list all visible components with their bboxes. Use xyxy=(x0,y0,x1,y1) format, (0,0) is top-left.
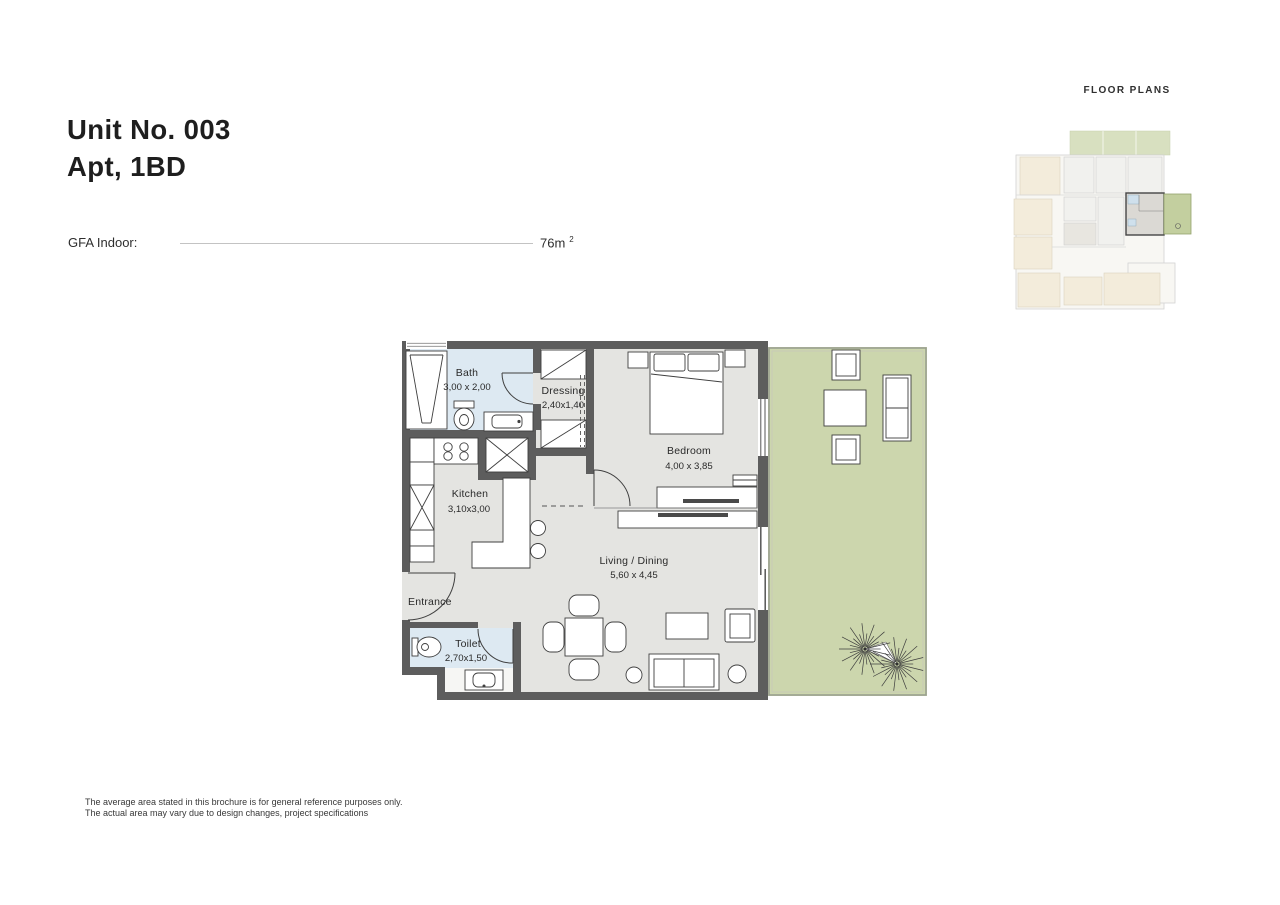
gfa-label: GFA Indoor: xyxy=(68,235,137,250)
minimap-highlighted-unit xyxy=(1126,193,1164,235)
outdoor-sofa-icon xyxy=(883,375,911,441)
side-table-icon xyxy=(626,667,642,683)
bar-stool-icon xyxy=(531,544,546,559)
wardrobe-icon xyxy=(541,350,586,379)
section-label: FLOOR PLANS xyxy=(1060,85,1194,96)
bar-stool-icon xyxy=(531,521,546,536)
nightstand-icon xyxy=(725,350,745,367)
room-label-living-dining: Living / Dining xyxy=(600,555,669,567)
dining-chair-icon xyxy=(569,659,599,680)
terrace xyxy=(768,347,927,696)
room-dim-toilet: 2,70x1,50 xyxy=(445,653,487,664)
disclaimer-line2: The actual area may vary due to design c… xyxy=(85,808,403,819)
room-dim-bedroom: 4,00 x 3,85 xyxy=(665,461,712,472)
room-label-kitchen: Kitchen xyxy=(452,488,488,500)
unit-type: Apt, 1BD xyxy=(67,148,231,185)
fridge-icon xyxy=(410,485,434,530)
armchair-icon xyxy=(725,609,755,642)
unit-number: Unit No. 003 xyxy=(67,111,231,148)
stove-icon xyxy=(434,438,478,464)
gfa-value: 76m2 xyxy=(540,235,574,250)
disclaimer-line1: The average area stated in this brochure… xyxy=(85,797,403,808)
outdoor-chair-icon xyxy=(832,350,860,380)
floor-locator-minimap xyxy=(1008,127,1194,312)
bath-window-icon xyxy=(406,341,447,349)
nightstand-icon xyxy=(628,352,648,368)
tv-unit-icon xyxy=(618,511,757,528)
coffee-table-icon xyxy=(666,613,708,639)
brochure-page: { "document": { "section_label": "FLOOR … xyxy=(0,0,1280,905)
room-dim-bath: 3,00 x 2,00 xyxy=(443,382,490,393)
disclaimer: The average area stated in this brochure… xyxy=(85,797,403,819)
room-dim-dressing: 2,40x1,40 xyxy=(542,400,584,411)
sofa-icon xyxy=(649,654,719,690)
dining-chair-icon xyxy=(605,622,626,652)
gfa-exponent: 2 xyxy=(569,235,573,244)
outdoor-table-icon xyxy=(824,390,866,426)
shower-icon xyxy=(406,351,447,429)
wardrobe-icon xyxy=(541,420,586,448)
room-label-bedroom: Bedroom xyxy=(667,445,711,457)
side-table-icon xyxy=(728,665,746,683)
floor-plan-drawing: Bath 3,00 x 2,00 Dressing 2,40x1,40 Bedr… xyxy=(400,337,932,703)
outdoor-chair-icon xyxy=(832,435,860,464)
bath-sink-icon xyxy=(484,412,533,431)
page-title: Unit No. 003 Apt, 1BD xyxy=(67,111,231,185)
room-label-dressing: Dressing xyxy=(541,385,584,397)
shaft-icon xyxy=(486,438,528,472)
room-label-toilet: Toilet xyxy=(455,638,481,650)
bedroom-dresser-icon xyxy=(657,487,757,508)
minimap-unit-terrace xyxy=(1164,194,1191,234)
toilet-wc-icon xyxy=(454,401,474,430)
toilet-wc-icon xyxy=(412,637,441,657)
room-dim-kitchen: 3,10x3,00 xyxy=(448,504,490,515)
toilet-sink-icon xyxy=(465,670,503,690)
bench-icon xyxy=(733,475,757,486)
terrace-sliding-door-icon xyxy=(758,527,768,610)
dining-chair-icon xyxy=(543,622,564,652)
bed-icon xyxy=(650,352,723,434)
bedroom-window-icon xyxy=(758,397,768,458)
room-label-bath: Bath xyxy=(456,367,478,379)
gfa-leader-line xyxy=(180,243,533,244)
room-dim-living-dining: 5,60 x 4,45 xyxy=(610,570,657,581)
dining-chair-icon xyxy=(569,595,599,616)
room-label-entrance: Entrance xyxy=(408,596,452,608)
